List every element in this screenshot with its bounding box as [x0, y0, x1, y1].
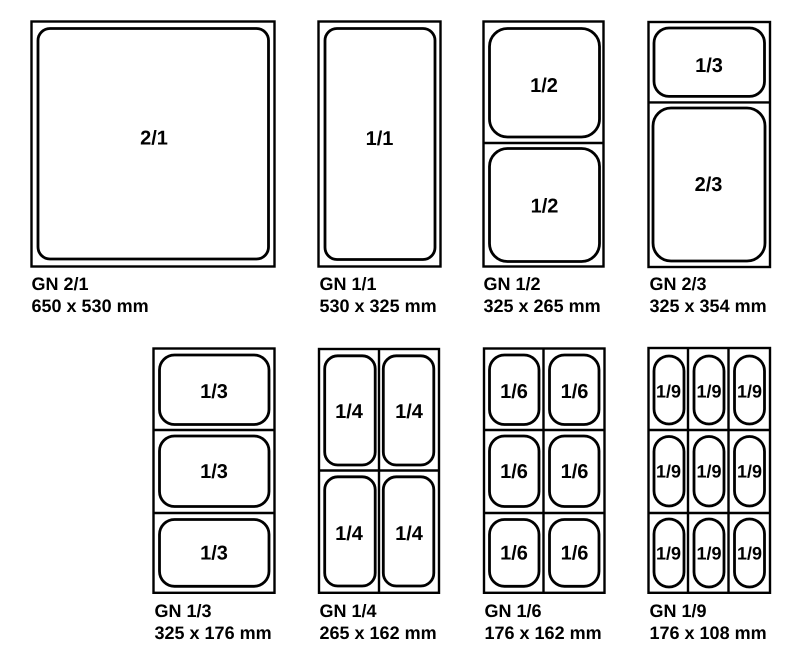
svg-text:1/4: 1/4 [335, 401, 364, 423]
svg-text:1/1: 1/1 [366, 128, 394, 150]
svg-text:GN 1/4: GN 1/4 [320, 601, 377, 621]
svg-text:1/6: 1/6 [500, 543, 528, 565]
svg-text:1/9: 1/9 [737, 382, 762, 402]
svg-text:265 x 162 mm: 265 x 162 mm [320, 623, 437, 643]
svg-text:2/3: 2/3 [695, 174, 723, 196]
svg-text:1/9: 1/9 [656, 462, 681, 482]
svg-text:GN 1/9: GN 1/9 [650, 601, 707, 621]
svg-text:1/4: 1/4 [395, 523, 424, 545]
svg-text:1/4: 1/4 [335, 523, 364, 545]
svg-text:GN 2/1: GN 2/1 [32, 274, 89, 294]
svg-text:1/6: 1/6 [561, 381, 589, 403]
svg-text:1/6: 1/6 [500, 381, 528, 403]
svg-text:1/6: 1/6 [500, 461, 528, 483]
svg-text:325 x 176 mm: 325 x 176 mm [155, 623, 272, 643]
svg-text:530 x 325 mm: 530 x 325 mm [320, 296, 437, 316]
svg-text:1/3: 1/3 [695, 55, 723, 77]
svg-text:1/6: 1/6 [561, 543, 589, 565]
svg-text:1/9: 1/9 [656, 382, 681, 402]
svg-text:325 x 265 mm: 325 x 265 mm [484, 296, 601, 316]
svg-text:1/6: 1/6 [561, 461, 589, 483]
svg-text:1/3: 1/3 [200, 543, 228, 565]
svg-text:1/9: 1/9 [696, 544, 721, 564]
svg-text:1/2: 1/2 [530, 75, 558, 97]
svg-text:GN 1/1: GN 1/1 [320, 274, 377, 294]
svg-text:GN 2/3: GN 2/3 [650, 274, 707, 294]
svg-text:GN 1/2: GN 1/2 [484, 274, 541, 294]
svg-text:1/9: 1/9 [696, 382, 721, 402]
svg-text:1/4: 1/4 [395, 401, 424, 423]
svg-text:1/9: 1/9 [737, 544, 762, 564]
svg-text:1/3: 1/3 [200, 381, 228, 403]
svg-text:1/2: 1/2 [531, 195, 559, 217]
svg-text:1/9: 1/9 [737, 462, 762, 482]
svg-text:176 x 108 mm: 176 x 108 mm [650, 623, 767, 643]
svg-text:GN 1/6: GN 1/6 [485, 601, 542, 621]
svg-text:176 x 162 mm: 176 x 162 mm [485, 623, 602, 643]
svg-text:2/1: 2/1 [140, 127, 168, 149]
svg-text:1/3: 1/3 [200, 461, 228, 483]
svg-text:325 x 354 mm: 325 x 354 mm [650, 296, 767, 316]
svg-text:1/9: 1/9 [696, 462, 721, 482]
svg-text:1/9: 1/9 [656, 544, 681, 564]
svg-text:GN 1/3: GN 1/3 [155, 601, 212, 621]
svg-text:650 x 530 mm: 650 x 530 mm [32, 296, 149, 316]
